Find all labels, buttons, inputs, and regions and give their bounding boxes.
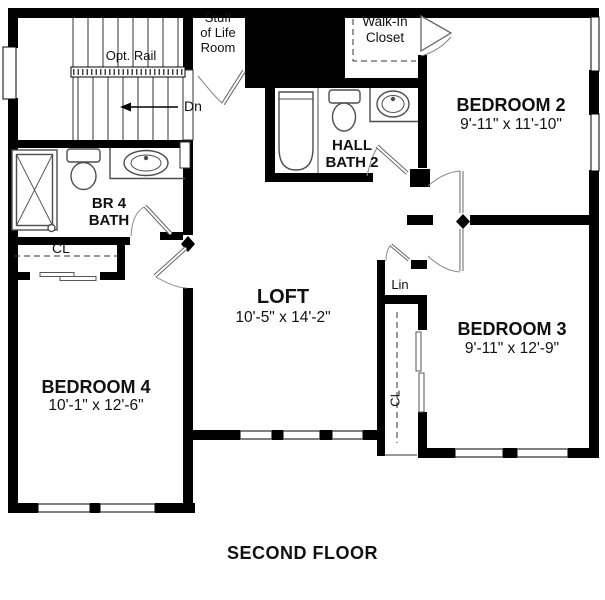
page-title: SECOND FLOOR [0,543,605,564]
hall-bath-2-label: HALL BATH 2 [310,137,394,172]
bedroom-3-dimensions: 9'-11" x 12'-9" [432,340,592,358]
bedroom-4-dimensions: 10'-1" x 12'-6" [16,397,176,415]
stuff-of-life-room-label: Stuff of Life Room [190,11,246,56]
wall-cap [456,214,470,229]
walk-in-closet-label: Walk-In Closet [348,14,422,45]
window [591,114,599,171]
closet-label-br4: CL [45,240,77,256]
stairs-down-arrow [120,103,178,112]
window [455,449,503,457]
closet-label-br3: CL [389,383,404,413]
door-bedroom-3 [428,229,462,272]
staircase [71,18,185,140]
toilet-symbol [67,149,100,190]
window [283,431,320,439]
sink-symbol [110,148,185,179]
br4-bath-label: BR 4 BATH [79,195,139,230]
sink-symbol [370,88,418,122]
bedroom-2-dimensions: 9'-11" x 11'-10" [431,116,591,134]
stairs-down-label: Dn [184,98,202,114]
stair-treads-lower [78,77,168,140]
window [3,47,16,99]
door-bedroom-2 [428,171,462,213]
window [591,17,599,71]
shower-symbol [12,150,57,232]
loft-dimensions: 10'-5" x 14'-2" [203,309,363,327]
linen-closet-label: Lin [385,278,415,293]
window [240,431,272,439]
sliding-door-symbol [40,273,96,281]
stair-railing [180,142,190,168]
door-walk-in-closet [421,16,451,56]
door-bedroom-4 [155,248,187,288]
loft-name: LOFT [203,286,363,309]
window [517,449,568,457]
windows [3,17,599,512]
bedroom-4-name: BEDROOM 4 [16,377,176,398]
opt-rail-label: Opt. Rail [88,49,174,64]
door-stuff-of-life-room [198,71,244,104]
toilet-symbol [329,90,360,131]
door-linen-closet [386,245,409,261]
floor-plan: Opt. Rail Stuff of Life Room Dn Walk-In … [0,0,605,600]
window [332,431,363,439]
window [38,504,90,512]
window [100,504,155,512]
bifold-door-symbol [416,332,424,412]
optional-rail-symbol [71,67,185,77]
bedroom-2-name: BEDROOM 2 [431,95,591,116]
bedroom-3-name: BEDROOM 3 [432,319,592,340]
